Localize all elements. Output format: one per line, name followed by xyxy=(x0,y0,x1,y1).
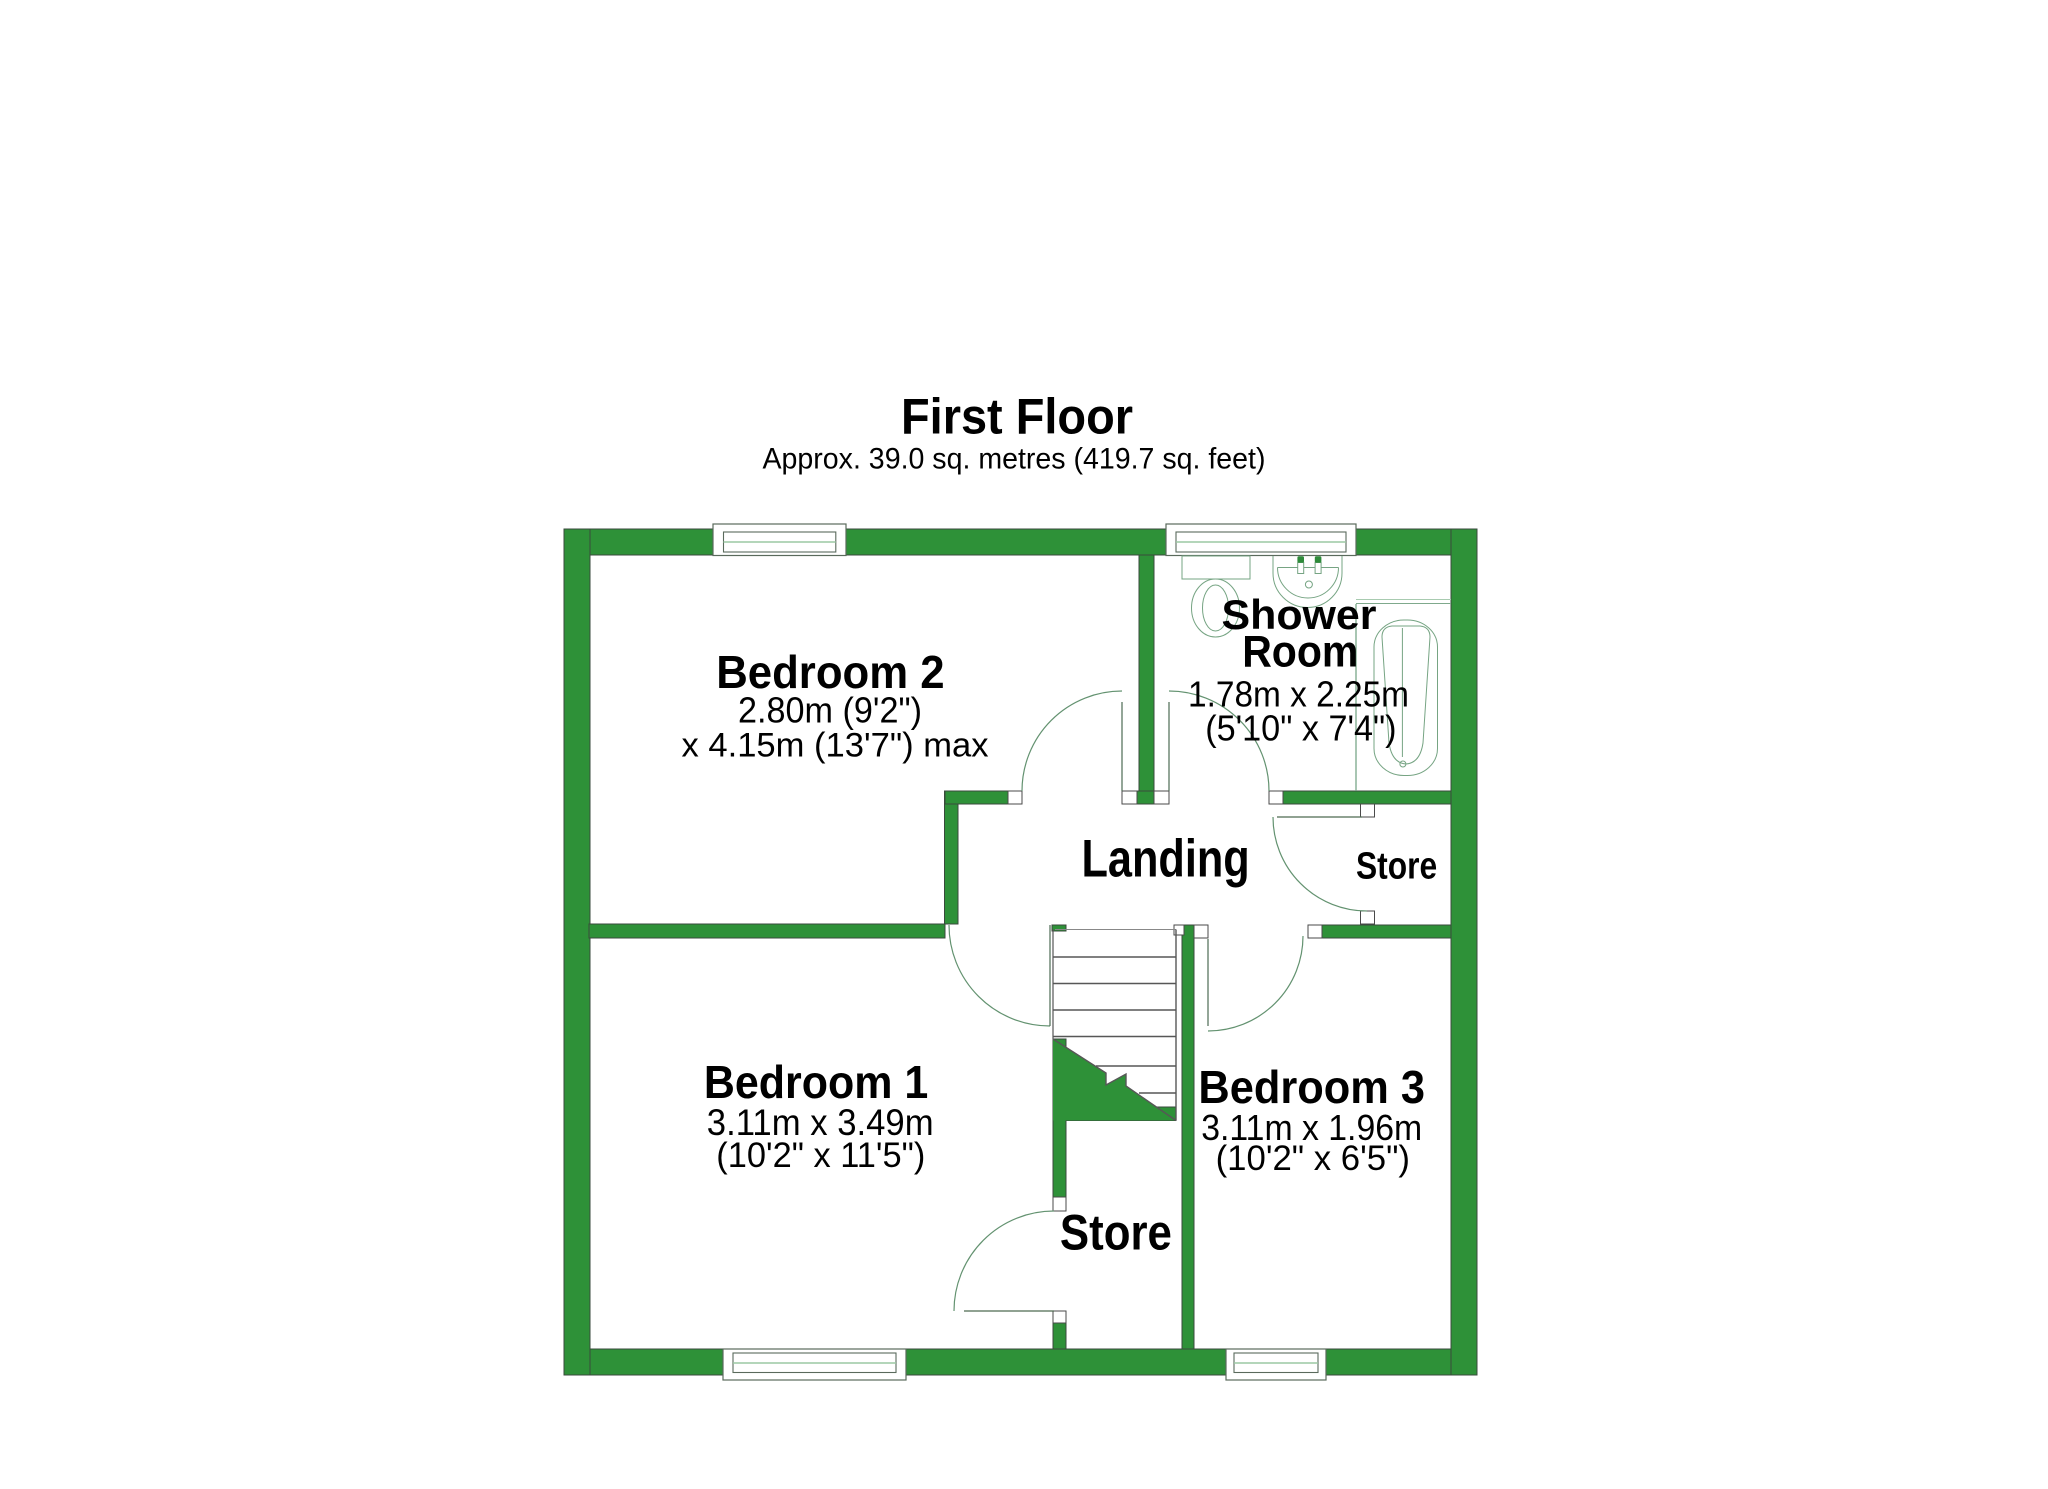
svg-text:2.80m (9'2"): 2.80m (9'2") xyxy=(738,689,922,730)
svg-text:Approx. 39.0 sq. metres (419.7: Approx. 39.0 sq. metres (419.7 sq. feet) xyxy=(763,443,1266,476)
svg-text:Bedroom 1: Bedroom 1 xyxy=(704,1056,928,1108)
svg-text:(10'2" x 6'5"): (10'2" x 6'5") xyxy=(1216,1139,1410,1178)
svg-text:Landing: Landing xyxy=(1082,830,1250,889)
svg-text:Bedroom 3: Bedroom 3 xyxy=(1198,1061,1425,1113)
svg-text:Store: Store xyxy=(1356,844,1437,887)
svg-text:Store: Store xyxy=(1060,1205,1172,1261)
svg-text:First Floor: First Floor xyxy=(901,388,1133,444)
svg-text:(5'10" x 7'4"): (5'10" x 7'4") xyxy=(1205,707,1396,748)
svg-text:x 4.15m (13'7") max: x 4.15m (13'7") max xyxy=(682,726,989,764)
svg-text:Room: Room xyxy=(1242,627,1358,676)
svg-text:(10'2" x 11'5"): (10'2" x 11'5") xyxy=(716,1135,925,1175)
